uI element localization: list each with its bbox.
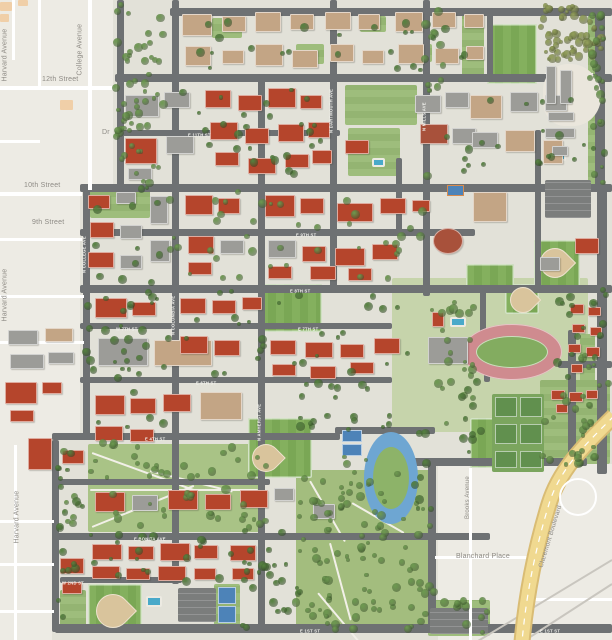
tree xyxy=(277,245,283,251)
tree xyxy=(367,589,372,594)
building xyxy=(466,46,484,60)
tree xyxy=(212,197,220,205)
tree xyxy=(314,247,321,254)
street-label-12th-street: 12th Street xyxy=(42,76,78,83)
tree xyxy=(431,35,437,41)
tree xyxy=(58,484,64,490)
tree xyxy=(289,88,293,92)
tree xyxy=(470,304,476,310)
tree xyxy=(195,473,200,478)
tree xyxy=(127,301,135,309)
tree xyxy=(545,39,552,46)
building xyxy=(28,438,52,470)
tree xyxy=(255,356,260,361)
tree xyxy=(261,563,269,571)
tree xyxy=(546,456,554,464)
tree xyxy=(568,36,573,41)
tree xyxy=(55,465,61,471)
tree xyxy=(449,304,458,313)
tree xyxy=(357,246,361,250)
tree xyxy=(115,531,122,538)
tree xyxy=(421,20,430,29)
tree xyxy=(221,485,230,494)
tree xyxy=(382,499,387,504)
road-label-e-1st-st: E 1ST ST xyxy=(540,629,560,634)
tree xyxy=(427,523,433,529)
tree xyxy=(327,593,331,597)
tree xyxy=(467,337,473,343)
tree xyxy=(278,529,285,536)
building xyxy=(586,390,598,399)
building xyxy=(310,366,336,379)
tree xyxy=(570,12,579,21)
boulevard-path xyxy=(524,584,612,640)
tree xyxy=(250,218,257,225)
building xyxy=(205,90,231,108)
tree xyxy=(479,140,485,146)
tree xyxy=(121,126,127,132)
tree xyxy=(309,143,315,149)
tree xyxy=(312,547,318,553)
tree xyxy=(570,4,575,9)
tree xyxy=(395,305,400,310)
tree xyxy=(132,260,138,266)
building xyxy=(546,66,556,104)
tree xyxy=(179,89,186,96)
tree xyxy=(441,25,449,33)
tree xyxy=(146,414,154,422)
tree xyxy=(555,131,564,140)
tree xyxy=(284,263,288,267)
building xyxy=(238,95,262,111)
tree xyxy=(325,621,330,626)
tree xyxy=(310,514,317,521)
tree xyxy=(130,389,137,396)
tree xyxy=(224,18,233,27)
building xyxy=(132,495,158,511)
tree xyxy=(146,72,152,78)
track-infield xyxy=(476,336,548,368)
tree xyxy=(96,273,104,281)
tree xyxy=(324,413,330,419)
building xyxy=(212,300,236,314)
tree xyxy=(469,431,476,438)
tree xyxy=(351,210,360,219)
tree xyxy=(110,441,118,449)
tree xyxy=(470,362,476,368)
tree xyxy=(269,598,278,607)
tree xyxy=(118,2,124,8)
tree xyxy=(422,611,428,617)
tree xyxy=(156,251,163,258)
tree xyxy=(421,429,430,438)
tree xyxy=(595,76,602,83)
tree xyxy=(147,473,153,479)
tree xyxy=(415,495,424,504)
tree xyxy=(126,11,131,16)
building xyxy=(92,544,122,560)
tree xyxy=(484,609,489,614)
building xyxy=(292,50,318,68)
tree xyxy=(581,433,585,437)
tree xyxy=(58,476,63,481)
tree xyxy=(92,242,99,249)
tree xyxy=(312,123,317,128)
tree xyxy=(121,101,127,107)
tree xyxy=(145,289,152,296)
tree xyxy=(56,523,64,531)
building xyxy=(398,44,424,64)
tree xyxy=(397,232,406,241)
tree xyxy=(447,378,455,386)
tree xyxy=(143,89,148,94)
tree xyxy=(428,506,434,512)
tree xyxy=(544,50,548,54)
tree xyxy=(300,23,309,32)
tree xyxy=(418,207,427,216)
tree xyxy=(427,89,431,93)
swimming-pool xyxy=(146,596,162,607)
tree xyxy=(135,444,140,449)
tree xyxy=(370,293,377,300)
tree xyxy=(213,217,222,226)
tree xyxy=(234,130,243,139)
building xyxy=(274,488,294,501)
road-label-e-8th-st: E 8TH ST xyxy=(290,289,310,294)
tree xyxy=(362,587,367,592)
tree xyxy=(113,360,117,364)
tennis-court xyxy=(495,451,517,468)
tree xyxy=(416,579,424,587)
tree xyxy=(599,320,607,328)
tree xyxy=(379,305,387,313)
tree xyxy=(144,122,152,130)
tree xyxy=(438,77,445,84)
tree xyxy=(62,509,69,516)
tree xyxy=(328,518,333,523)
tree xyxy=(242,528,248,534)
tree xyxy=(423,172,431,180)
tree xyxy=(135,547,143,555)
tree xyxy=(587,75,593,81)
tree xyxy=(377,522,384,529)
road-label-e-4th-st: E 4TH ST xyxy=(145,437,165,442)
tree xyxy=(134,171,139,176)
tree xyxy=(352,613,361,622)
tree xyxy=(357,274,363,280)
tree xyxy=(462,367,467,372)
tree xyxy=(569,303,574,308)
tree xyxy=(155,92,160,97)
building xyxy=(330,44,354,62)
tree xyxy=(591,301,597,307)
building xyxy=(5,382,37,404)
tree xyxy=(257,570,262,575)
building xyxy=(45,328,73,342)
tree xyxy=(65,468,69,472)
tree xyxy=(410,30,414,34)
tree xyxy=(591,445,596,450)
tree xyxy=(72,497,81,506)
tree xyxy=(156,165,161,170)
street-label-10th-street: 10th Street xyxy=(24,182,60,189)
tree xyxy=(281,607,287,613)
tree xyxy=(430,308,434,312)
tree xyxy=(156,58,163,65)
tree xyxy=(421,55,429,63)
tree xyxy=(229,289,234,294)
tree xyxy=(408,604,415,611)
tree xyxy=(141,57,149,65)
tree xyxy=(402,19,410,27)
road-label-e-11th-st: E 11TH ST xyxy=(188,133,211,138)
tree xyxy=(249,584,257,592)
tree xyxy=(586,364,592,370)
tree xyxy=(142,98,149,105)
building xyxy=(90,222,114,238)
tree xyxy=(352,470,357,475)
road-label-n-amherst-ave: N AMHERST AVE xyxy=(257,404,262,441)
tree xyxy=(194,317,200,323)
tree xyxy=(364,573,369,578)
tree xyxy=(217,290,223,296)
tree xyxy=(250,158,258,166)
tree xyxy=(129,202,136,209)
tree xyxy=(581,326,585,330)
tree xyxy=(243,124,249,130)
tree xyxy=(262,518,268,524)
tree xyxy=(312,554,321,563)
tree xyxy=(278,577,286,585)
tree xyxy=(535,159,542,166)
interchange-loop xyxy=(560,479,596,515)
tree xyxy=(219,95,223,99)
tree xyxy=(166,196,173,203)
building xyxy=(255,12,281,32)
building xyxy=(0,14,9,22)
tree xyxy=(215,34,223,42)
tree xyxy=(162,513,167,518)
tree xyxy=(381,425,385,429)
road-label-n-mills-ave: N MILLS AVE xyxy=(422,102,427,131)
tree xyxy=(258,199,267,208)
campus-map[interactable]: Harvard AvenueHarvard AvenueHarvard Aven… xyxy=(0,0,612,640)
tree xyxy=(418,68,422,72)
tree xyxy=(587,402,594,409)
tree xyxy=(89,533,93,537)
road-label-w-7th-st: W 7TH ST xyxy=(116,327,138,332)
tree xyxy=(346,558,350,562)
tree xyxy=(206,142,213,149)
tree xyxy=(91,560,97,566)
tree xyxy=(64,500,69,505)
tree xyxy=(359,533,365,539)
tree xyxy=(115,540,120,545)
tree xyxy=(280,51,285,56)
tree xyxy=(67,450,74,457)
building xyxy=(540,257,560,271)
tree xyxy=(545,5,553,13)
tree xyxy=(386,421,393,428)
building xyxy=(163,394,191,412)
tree xyxy=(318,500,325,507)
tree xyxy=(129,143,135,149)
tree xyxy=(590,123,597,130)
tree xyxy=(463,416,469,422)
swimming-pool xyxy=(372,158,385,167)
tree xyxy=(152,96,156,100)
tree xyxy=(263,100,270,107)
tree xyxy=(461,51,469,59)
tree xyxy=(298,416,303,421)
street-label-harvard-avenue: Harvard Avenue xyxy=(14,491,21,544)
road-label-e-bonita-ave: E BONITA AVE xyxy=(134,537,166,542)
tennis-court xyxy=(342,430,362,442)
tennis-court xyxy=(520,397,542,417)
tree xyxy=(114,514,122,522)
tree xyxy=(565,374,570,379)
tree xyxy=(416,232,425,241)
building xyxy=(130,398,156,414)
tree xyxy=(592,354,599,361)
building xyxy=(95,426,123,441)
building xyxy=(48,352,74,364)
building xyxy=(18,0,28,6)
tennis-court xyxy=(218,587,236,604)
tree xyxy=(96,420,101,425)
building xyxy=(255,44,283,66)
tree xyxy=(601,37,605,41)
tree xyxy=(566,311,573,318)
tree xyxy=(356,482,363,489)
tree xyxy=(136,355,143,362)
building xyxy=(380,198,406,214)
tree xyxy=(118,275,126,283)
tree xyxy=(582,143,586,147)
tree xyxy=(422,459,431,468)
tree xyxy=(583,32,591,40)
tree xyxy=(361,521,368,528)
building xyxy=(95,395,125,415)
tree xyxy=(440,62,446,68)
building xyxy=(270,340,296,355)
tree xyxy=(569,450,575,456)
road-label-n-columbia-ave: N COLUMBIA AVE xyxy=(171,296,176,335)
building xyxy=(362,50,384,64)
tree xyxy=(559,15,564,20)
tree xyxy=(465,145,474,154)
tree xyxy=(90,366,97,373)
tree xyxy=(495,144,501,150)
tree xyxy=(599,25,605,31)
tree xyxy=(240,501,247,508)
building xyxy=(245,128,269,144)
tree xyxy=(343,460,351,468)
tree xyxy=(401,517,405,521)
tree xyxy=(145,30,152,37)
tree xyxy=(579,15,587,23)
tree xyxy=(197,536,206,545)
tree xyxy=(552,29,557,34)
road-label-e-7th-st: E 7TH ST xyxy=(298,327,318,332)
building xyxy=(588,307,601,316)
tree xyxy=(135,109,144,118)
tree xyxy=(88,469,93,474)
tree xyxy=(116,108,120,112)
tree xyxy=(582,422,590,430)
building xyxy=(374,338,400,354)
tree xyxy=(598,46,604,52)
tree xyxy=(589,12,596,19)
tree xyxy=(414,531,422,539)
tree xyxy=(343,197,351,205)
tree xyxy=(582,353,587,358)
building xyxy=(8,330,38,345)
building xyxy=(548,112,574,121)
building xyxy=(575,238,599,254)
building xyxy=(415,95,441,113)
tree xyxy=(551,415,556,420)
building xyxy=(335,248,365,266)
street-label-college-avenue: College Avenue xyxy=(77,24,84,76)
road-label-e-1st-st: E 1ST ST xyxy=(300,629,320,634)
tree xyxy=(297,514,302,519)
building xyxy=(272,364,296,376)
tree xyxy=(231,314,239,322)
road-label-e-6th-st: E 6TH ST xyxy=(196,381,216,386)
tree xyxy=(600,180,605,185)
tree xyxy=(434,379,443,388)
tree xyxy=(438,309,446,317)
tree xyxy=(314,379,323,388)
round-building xyxy=(433,228,463,254)
swimming-pool xyxy=(450,317,466,327)
tree xyxy=(479,597,486,604)
tree xyxy=(187,473,195,481)
building xyxy=(340,344,364,358)
tree xyxy=(364,302,373,311)
tree xyxy=(394,65,401,72)
tree xyxy=(215,515,222,522)
tree xyxy=(211,370,219,378)
tree xyxy=(159,100,168,109)
tree xyxy=(299,393,305,399)
tree xyxy=(113,38,122,47)
tree xyxy=(389,599,396,606)
building xyxy=(220,240,244,254)
tree xyxy=(60,568,66,574)
building xyxy=(472,132,498,148)
tree xyxy=(135,246,140,251)
tree xyxy=(60,614,66,620)
tennis-court xyxy=(495,397,517,417)
tree xyxy=(86,356,95,365)
tennis-court xyxy=(218,606,236,623)
building xyxy=(166,136,194,154)
street-label-9th-street: 9th Street xyxy=(32,219,64,226)
tree xyxy=(59,548,67,556)
tree xyxy=(399,559,406,566)
tree xyxy=(255,455,260,460)
building xyxy=(325,12,351,30)
basketball-court xyxy=(447,185,464,196)
building xyxy=(222,50,244,64)
building xyxy=(10,354,44,369)
building xyxy=(215,152,239,166)
tree xyxy=(588,50,596,58)
tree xyxy=(408,578,416,586)
tree xyxy=(394,471,401,478)
